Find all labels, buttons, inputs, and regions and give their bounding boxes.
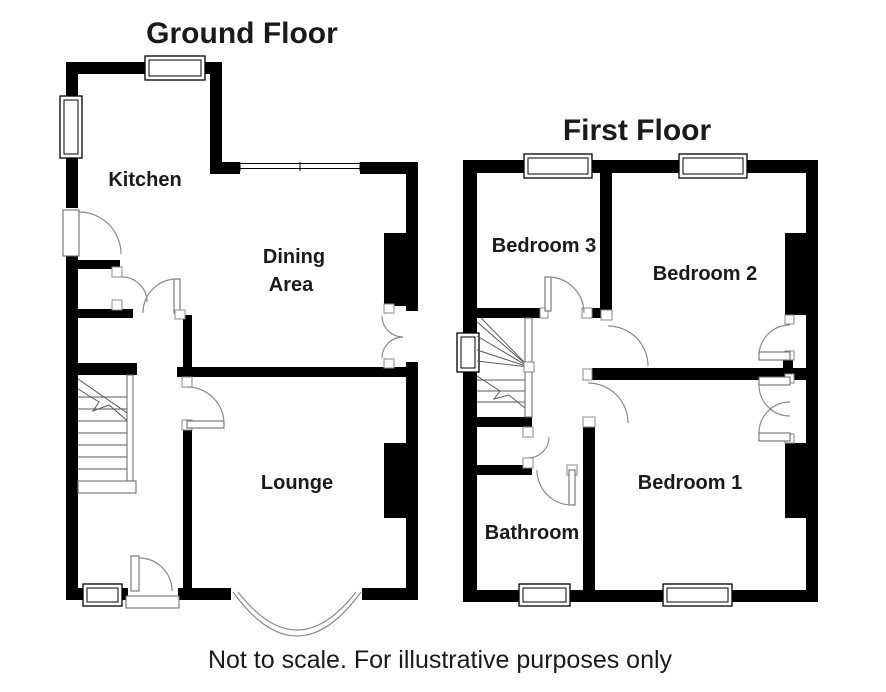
bedroom2-window — [679, 154, 747, 178]
bedroom1-cupboard-doors — [759, 374, 794, 443]
kitchen-top-window — [145, 56, 205, 80]
chimney-breast-dining — [384, 233, 406, 306]
kitchen-exterior-door — [63, 210, 121, 256]
stair-bottom-step — [78, 481, 136, 493]
bedroom1-window — [663, 584, 732, 606]
airing-cupboard-door — [523, 427, 549, 468]
understairs-cupboard-door — [112, 267, 147, 310]
stair-rail-lower — [525, 371, 532, 417]
floorplan-canvas: Ground Floor — [0, 0, 886, 692]
staircase-first — [477, 318, 534, 417]
room-label-kitchen: Kitchen — [108, 169, 181, 191]
room-label-bedroom1: Bedroom 1 — [638, 472, 742, 494]
dining-strip-window — [240, 162, 360, 171]
floorplan-page: Ground Floor — [0, 0, 886, 692]
first-floor-title: First Floor — [563, 114, 712, 147]
bedroom2-cupboard-door — [759, 315, 794, 360]
bathroom-window — [519, 584, 570, 606]
room-label-bedroom2: Bedroom 2 — [653, 263, 757, 285]
room-label-lounge: Lounge — [261, 472, 333, 494]
ground-floor-title: Ground Floor — [146, 17, 338, 50]
bedroom3-window — [524, 154, 592, 178]
ground-floor-plan: Ground Floor — [60, 17, 418, 636]
stair-rail — [127, 375, 133, 481]
chimney-breast-lounge — [384, 443, 406, 518]
lounge-door — [182, 377, 224, 430]
kitchen-side-window — [60, 96, 82, 158]
hall-front-window — [83, 584, 122, 606]
bedroom1-door — [583, 383, 628, 427]
room-label-dining-line1: Dining — [263, 246, 325, 268]
room-label-bedroom3: Bedroom 3 — [492, 235, 596, 257]
ground-floor-walls — [66, 62, 418, 600]
room-label-bathroom: Bathroom — [485, 522, 579, 544]
dining-french-doors — [382, 304, 403, 368]
chimney-breast-bedroom2 — [785, 233, 806, 315]
disclaimer-text: Not to scale. For illustrative purposes … — [208, 646, 673, 674]
hall-to-dining-door — [143, 279, 185, 319]
front-door — [126, 556, 179, 608]
chimney-breast-bedroom1 — [785, 443, 806, 518]
landing-side-window — [457, 333, 479, 372]
first-floor-plan: First Floor — [457, 114, 818, 606]
stair-rail-upper — [525, 318, 532, 364]
bedroom3-door — [540, 277, 592, 318]
bathroom-door — [537, 465, 577, 505]
staircase-ground — [78, 375, 136, 493]
room-label-dining-line2: Area — [269, 274, 314, 296]
